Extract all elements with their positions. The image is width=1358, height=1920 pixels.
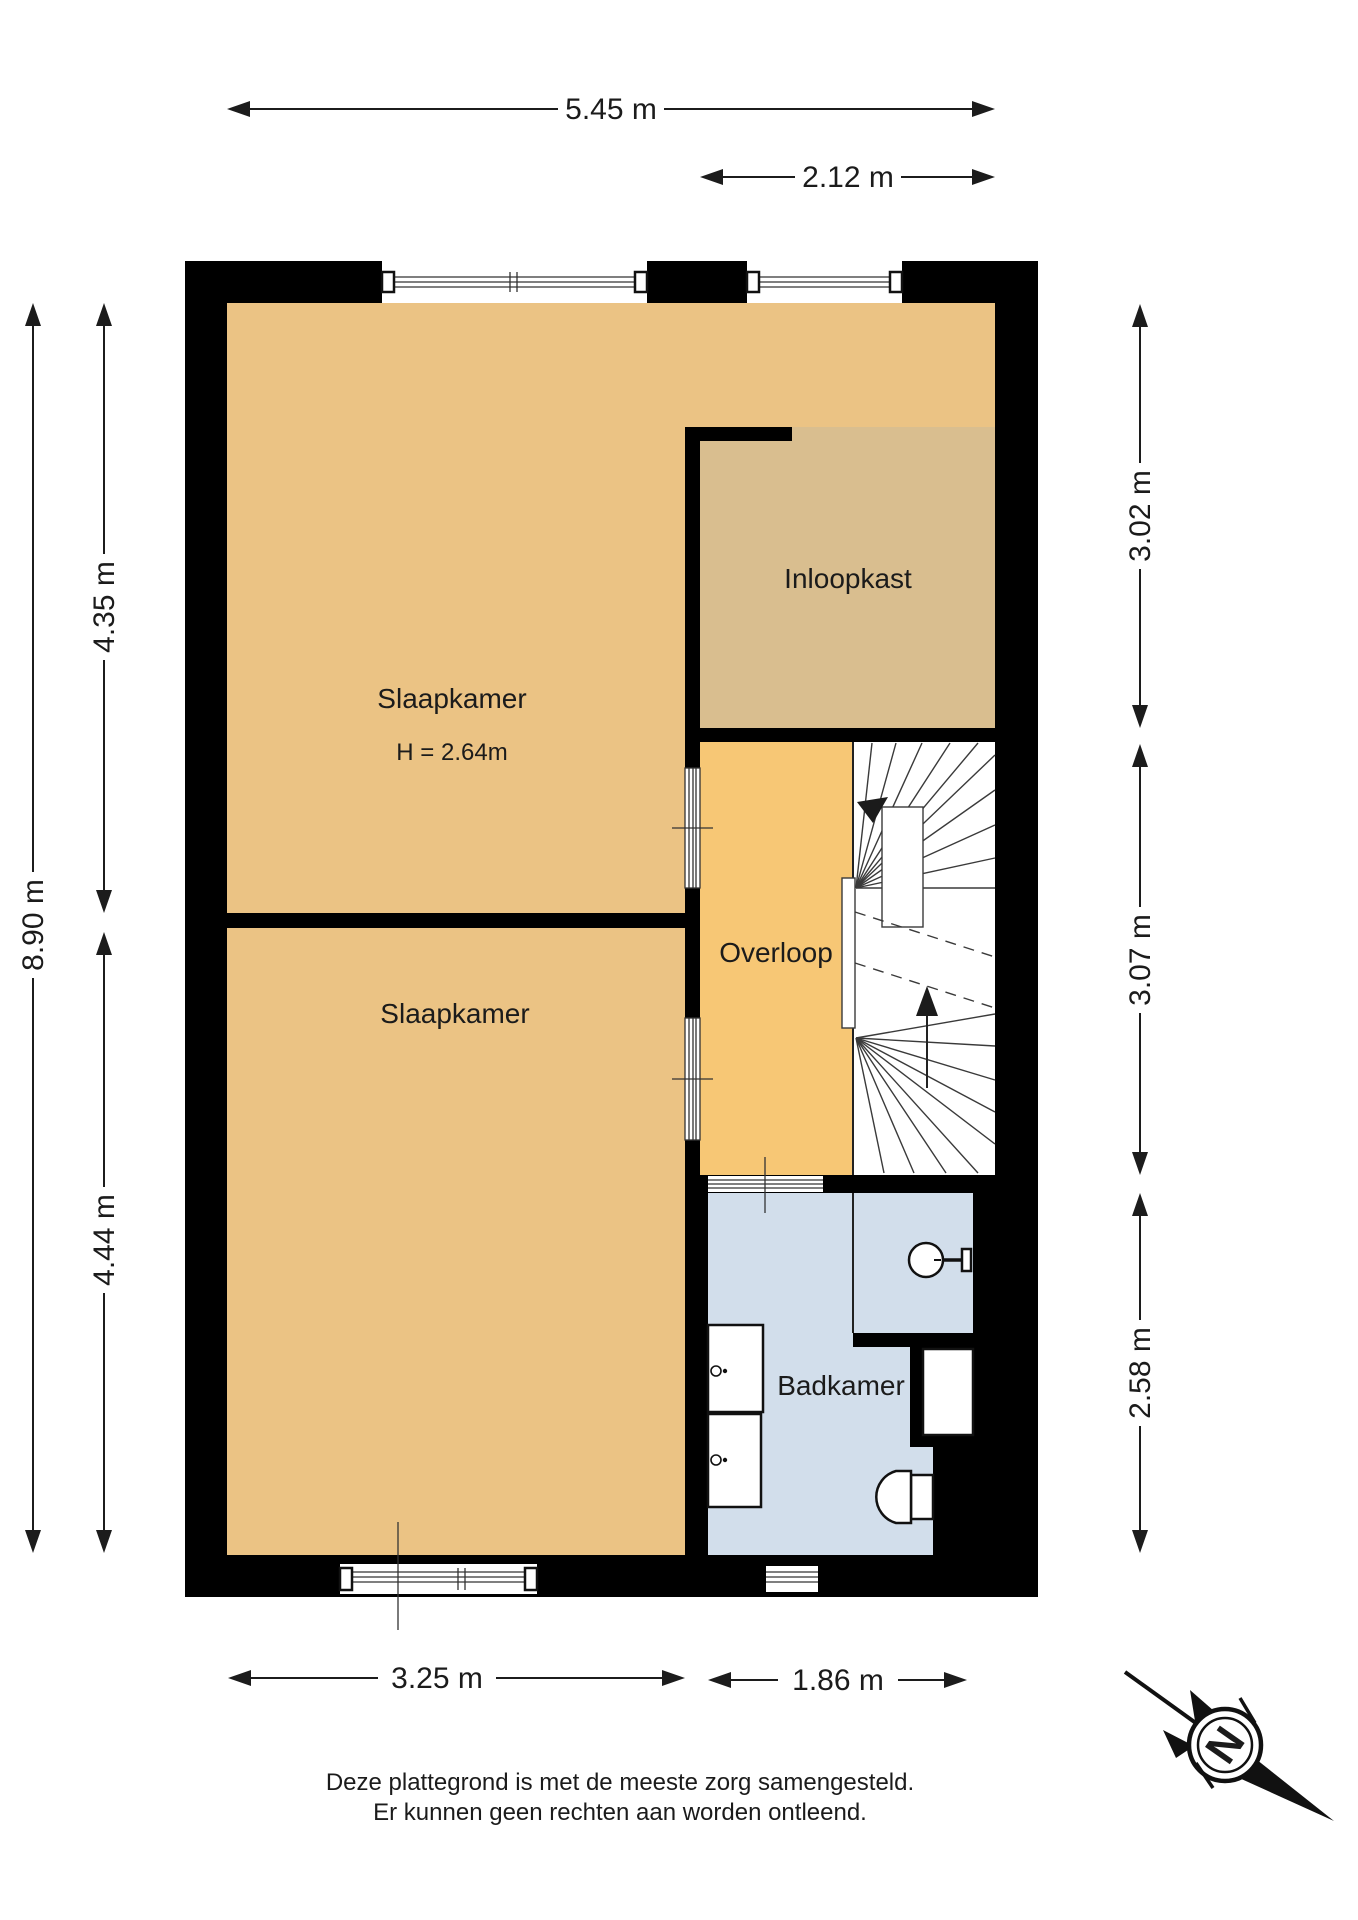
dimension-right-lower: 2.58 m xyxy=(1124,1193,1157,1553)
wall-toilet-block xyxy=(933,1447,995,1555)
appliance-icon xyxy=(708,1325,763,1412)
window-opening xyxy=(766,1566,818,1592)
disclaimer-line-1: Deze plattegrond is met de meeste zorg s… xyxy=(326,1769,914,1796)
wall-bedroom-divider xyxy=(227,913,685,928)
dimension-right-upper: 3.02 m xyxy=(1124,304,1157,728)
window-frame xyxy=(890,272,902,292)
window-bottom-right xyxy=(766,1566,818,1592)
disclaimer-line-2: Er kunnen geen rechten aan worden ontlee… xyxy=(373,1799,867,1826)
compass-north-icon: N xyxy=(1125,1672,1334,1821)
window-frame xyxy=(747,272,759,292)
dim-bottom-left: 3.25 m xyxy=(391,1662,483,1695)
label-slaapkamer-2: Slaapkamer xyxy=(380,998,529,1029)
floorplan-canvas: Slaapkamer H = 2.64m Inloopkast Overloop… xyxy=(0,0,1358,1920)
dimension-left-upper: 4.35 m xyxy=(88,303,121,913)
wall-left xyxy=(185,261,227,1597)
window-frame xyxy=(525,1568,537,1590)
dim-left-total: 8.90 m xyxy=(17,879,50,971)
label-overloop: Overloop xyxy=(719,937,833,968)
dim-right-upper: 3.02 m xyxy=(1124,470,1157,562)
dimension-top-total: 5.45 m xyxy=(227,93,995,126)
wall-niche-bottom xyxy=(853,1333,973,1347)
window-opening xyxy=(340,1564,537,1594)
appliance-icon xyxy=(708,1414,761,1507)
stair-handrail xyxy=(842,878,855,1028)
room-fills xyxy=(227,303,995,1555)
wall-top-right-segment xyxy=(902,261,1038,303)
dim-right-middle: 3.07 m xyxy=(1124,914,1157,1006)
stairwell-void xyxy=(882,807,923,927)
dimension-top-right: 2.12 m xyxy=(700,161,995,194)
wall-right xyxy=(995,261,1038,1597)
wall-interior-vertical xyxy=(685,427,700,1555)
wall-bottom xyxy=(185,1555,1038,1597)
wall-inloopkast-bottom xyxy=(700,728,995,742)
window-top-left xyxy=(382,268,647,296)
dim-right-lower: 2.58 m xyxy=(1124,1327,1157,1419)
dim-top-right: 2.12 m xyxy=(802,161,894,194)
dimension-bottom-right: 1.86 m xyxy=(708,1664,967,1697)
shaft xyxy=(923,1349,973,1435)
label-slaapkamer-1: Slaapkamer xyxy=(377,683,526,714)
room-slaapkamer-1 xyxy=(227,303,685,928)
wall-top-pier xyxy=(647,261,747,303)
toilet-icon xyxy=(876,1471,933,1523)
dim-top-total: 5.45 m xyxy=(565,93,657,126)
window-top-right xyxy=(747,268,902,296)
label-ceiling-height: H = 2.64m xyxy=(396,739,507,766)
dimension-left-total: 8.90 m xyxy=(17,303,50,1553)
dimension-right-middle: 3.07 m xyxy=(1124,744,1157,1175)
dimension-bottom-left: 3.25 m xyxy=(228,1662,685,1695)
dimension-left-lower: 4.44 m xyxy=(88,932,121,1553)
dim-bottom-right: 1.86 m xyxy=(792,1664,884,1697)
window-frame xyxy=(340,1568,352,1590)
dim-left-lower: 4.44 m xyxy=(88,1194,121,1286)
window-frame xyxy=(635,272,647,292)
label-inloopkast: Inloopkast xyxy=(784,563,912,594)
wall-inloopkast-top xyxy=(685,427,792,441)
label-badkamer: Badkamer xyxy=(777,1370,905,1401)
window-frame xyxy=(382,272,394,292)
wall-top-left-segment xyxy=(185,261,382,303)
dim-left-upper: 4.35 m xyxy=(88,561,121,653)
disclaimer: Deze plattegrond is met de meeste zorg s… xyxy=(326,1769,914,1826)
